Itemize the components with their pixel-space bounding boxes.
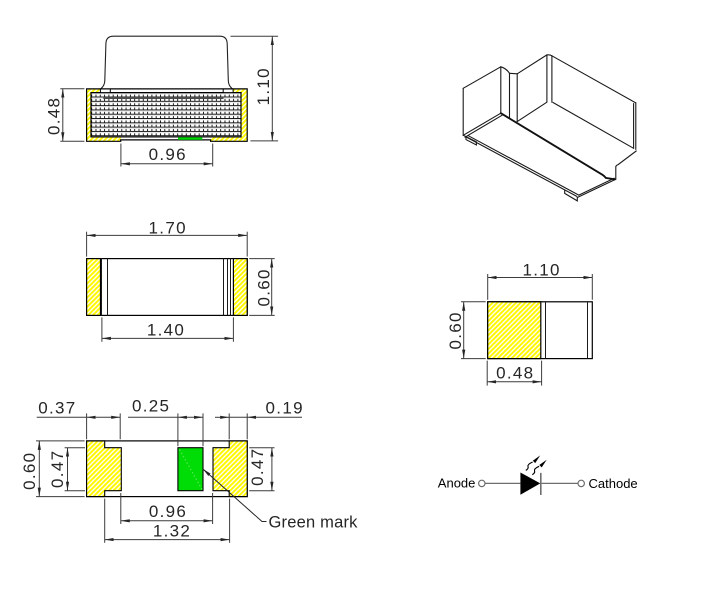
svg-text:Green mark: Green mark	[269, 513, 359, 531]
svg-text:0.47: 0.47	[248, 448, 267, 486]
svg-text:0.96: 0.96	[149, 145, 187, 164]
svg-text:1.32: 1.32	[153, 522, 191, 541]
svg-text:1.10: 1.10	[254, 67, 273, 105]
svg-text:1.10: 1.10	[522, 260, 560, 279]
svg-text:0.19: 0.19	[266, 399, 304, 418]
svg-text:1.40: 1.40	[147, 320, 185, 339]
svg-text:1.70: 1.70	[149, 218, 187, 237]
svg-text:0.96: 0.96	[149, 502, 187, 521]
svg-text:Anode: Anode	[438, 476, 476, 491]
svg-text:0.60: 0.60	[446, 311, 465, 349]
svg-text:0.60: 0.60	[254, 268, 273, 306]
svg-text:0.48: 0.48	[496, 363, 534, 382]
svg-text:0.60: 0.60	[20, 452, 39, 490]
svg-text:0.47: 0.47	[48, 450, 67, 488]
svg-text:0.48: 0.48	[44, 97, 63, 135]
svg-text:Cathode: Cathode	[589, 476, 638, 491]
svg-text:0.25: 0.25	[132, 397, 170, 416]
svg-text:0.37: 0.37	[38, 399, 76, 418]
